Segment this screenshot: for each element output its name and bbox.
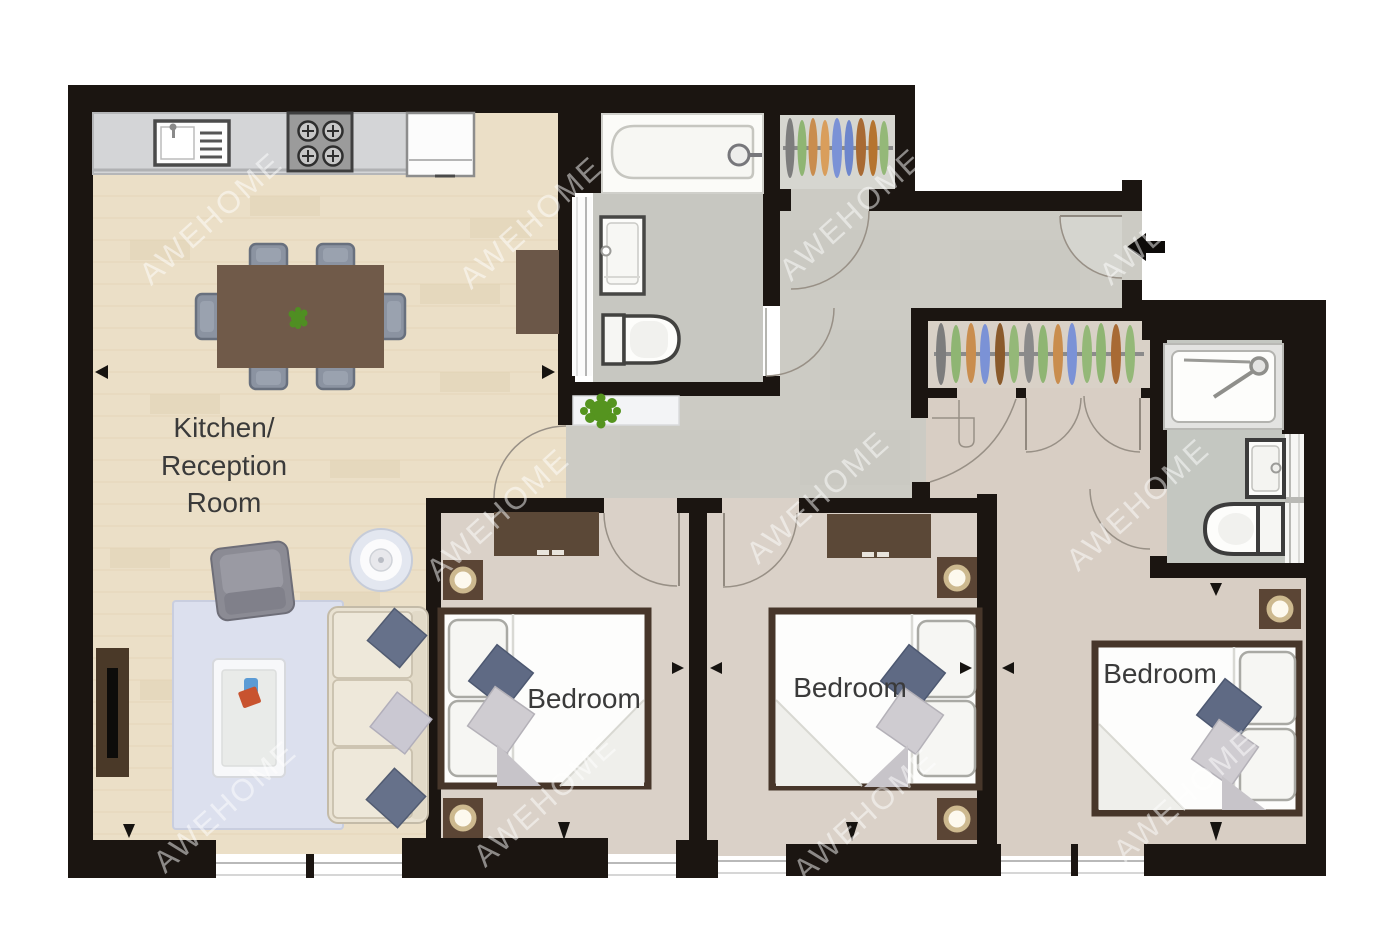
svg-text:Reception: Reception (161, 450, 287, 481)
svg-text:Bedroom: Bedroom (527, 683, 641, 714)
svg-text:Kitchen/: Kitchen/ (173, 412, 274, 443)
svg-text:Bedroom: Bedroom (1103, 658, 1217, 689)
svg-text:Room: Room (187, 487, 262, 518)
svg-text:Bedroom: Bedroom (793, 672, 907, 703)
